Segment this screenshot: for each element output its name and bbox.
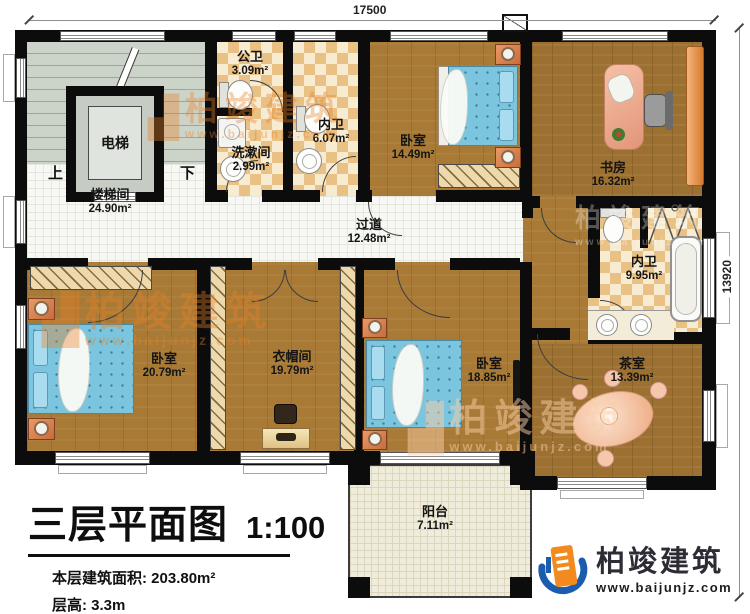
- washer-door: [224, 124, 240, 140]
- brand-logo: 柏竣建筑 www.baijunjz.com: [536, 543, 732, 599]
- toilet-icon-ensuitelarge: [603, 215, 624, 243]
- pillow-south-2: [371, 386, 385, 420]
- lamp-west-2: [34, 421, 49, 436]
- wall-bath-divider-h: [217, 108, 252, 116]
- cabinet-study: [686, 46, 704, 186]
- label-elevator: 电梯: [101, 135, 129, 151]
- sink-icon-ensuitelarge-1: [596, 314, 618, 336]
- wall-corridor-stub: [522, 196, 533, 218]
- label-washroom: 洗漱间2.99m²: [231, 146, 270, 174]
- label-stairwell: 楼梯间24.90m²: [89, 188, 132, 216]
- office-chair-icon: [644, 94, 667, 127]
- sill-bottom-3: [560, 490, 644, 499]
- dim-line-top: [28, 20, 716, 21]
- label-bedroom-west: 卧室20.79m²: [143, 352, 186, 380]
- wall-bedroomwest-cloak: [197, 262, 210, 452]
- wardrobe-cloak-right: [340, 266, 356, 450]
- elevator-wall-top: [66, 86, 164, 96]
- wall-ensuite-bedroom: [358, 42, 370, 196]
- wall-corridor-bottom-4: [450, 258, 520, 270]
- dim-line-right: [739, 28, 740, 598]
- label-balcony: 阳台7.11m²: [417, 505, 453, 533]
- label-cloakroom: 衣帽间19.79m²: [271, 350, 314, 378]
- label-down: 下: [180, 162, 195, 183]
- plant-icon: [612, 128, 625, 141]
- sink-icon-ensuitelarge-2: [630, 314, 652, 336]
- window-publicbath-top: [232, 31, 276, 41]
- label-up: 上: [48, 162, 63, 183]
- wall-corridor-top-4: [436, 190, 532, 202]
- elevator-wall-left: [66, 86, 76, 202]
- lamp-north-2: [501, 150, 515, 164]
- lamp-west-1: [34, 301, 49, 316]
- label-tea-room: 茶室13.39m²: [611, 357, 654, 385]
- title-block: 三层平面图 1:100 本层建筑面积: 203.80m² 层高: 3.3m: [28, 494, 325, 614]
- lamp-north-1: [501, 47, 515, 61]
- wall-wash-ensuite: [283, 42, 293, 196]
- vanity-stool-icon: [274, 404, 297, 424]
- elevator-wall-right: [154, 86, 164, 202]
- office-chair-back: [665, 91, 673, 130]
- balcony-post-bl: [348, 577, 370, 598]
- sill-left-2: [3, 196, 15, 248]
- pillow-north-1: [499, 71, 514, 103]
- label-corridor: 过道12.48m²: [348, 218, 391, 246]
- brand-logo-icon: [536, 543, 588, 599]
- window-bedroomnorth-top: [390, 31, 488, 41]
- tea-stool-3: [572, 384, 588, 400]
- dim-width-label: 17500: [348, 3, 391, 17]
- flue-shaft: [502, 14, 528, 32]
- bathtub-basin: [675, 243, 697, 315]
- window-cloakroom-bottom: [240, 452, 330, 464]
- teapot-icon: [600, 407, 618, 425]
- title-underline: [28, 554, 290, 557]
- pillow-south-1: [371, 346, 385, 380]
- label-public-bath: 公卫3.09m²: [232, 50, 268, 78]
- wall-outer-bottom-tea2: [647, 476, 716, 490]
- window-ensuitesmall-top: [294, 31, 336, 41]
- sill-right-2: [716, 384, 728, 448]
- tv-icon: [513, 360, 520, 406]
- window-tearoom-right: [703, 390, 715, 442]
- window-stairwell-top: [60, 31, 165, 41]
- label-bedroom-north: 卧室14.49m²: [392, 134, 435, 162]
- wall-study-bottom-1: [532, 196, 540, 208]
- wall-ensuite-large-left-1: [588, 196, 600, 298]
- plan-title: 三层平面图: [28, 494, 228, 550]
- pillow-west-2: [33, 372, 48, 408]
- toilet-icon-publicbath: [227, 80, 253, 110]
- label-study: 书房16.32m²: [592, 161, 635, 189]
- dim-height-label: 13920: [720, 256, 734, 297]
- plan-scale: 1:100: [246, 510, 325, 546]
- tea-stool-4: [597, 450, 614, 467]
- sink-icon-ensuitesmall: [296, 148, 322, 174]
- floor-plan-page: 电梯 上 下 楼梯间24.90m² 公卫3.09m² 洗漱间2.99m² 内卫6…: [0, 0, 750, 614]
- wall-corridor-top-3: [356, 190, 372, 202]
- wall-outer-bottom-mid1: [360, 451, 380, 465]
- brand-url: www.baijunjz.com: [596, 580, 732, 595]
- wall-stair-bath: [205, 42, 217, 196]
- label-ensuite-small: 内卫6.07m²: [313, 118, 349, 146]
- pillow-north-2: [499, 109, 514, 141]
- wardrobe-cloak-left: [210, 266, 226, 450]
- wall-shower-divider: [640, 200, 648, 248]
- vanity-mirror: [276, 433, 296, 441]
- sill-left-1: [3, 54, 15, 102]
- floor-height-line: 层高: 3.3m: [52, 594, 325, 614]
- lamp-south-2: [368, 432, 382, 446]
- lamp-south-1: [368, 320, 382, 334]
- label-bedroom-south: 卧室18.85m²: [468, 357, 511, 385]
- sill-bottom-2: [243, 465, 327, 474]
- wall-bedroom-study: [520, 42, 532, 196]
- window-study-top: [562, 31, 668, 41]
- wall-bedroomsouth-right: [520, 262, 532, 465]
- brand-name: 柏竣建筑: [596, 548, 732, 577]
- wall-outer-bottom-tea1: [535, 476, 557, 490]
- balcony-sliding-door: [380, 452, 500, 464]
- window-landing-left: [16, 200, 26, 244]
- balcony-post-br: [510, 577, 532, 598]
- window-stairwell-left: [16, 58, 26, 98]
- balcony-post-tl: [348, 464, 370, 485]
- wall-corridor-top-1: [205, 190, 228, 202]
- window-bedroomwest-left: [16, 305, 26, 349]
- window-ensuitelarge-right: [703, 238, 715, 318]
- wall-corridor-top-2: [262, 190, 320, 202]
- window-tearoom-bottom: [557, 477, 647, 489]
- pillow-west-1: [33, 330, 48, 366]
- floor-area-line: 本层建筑面积: 203.80m²: [52, 567, 325, 588]
- window-bedroomwest-bottom: [55, 452, 150, 464]
- sill-bottom-1: [58, 465, 147, 474]
- label-ensuite-large: 内卫9.95m²: [626, 255, 662, 283]
- balcony-post-tr: [510, 464, 532, 485]
